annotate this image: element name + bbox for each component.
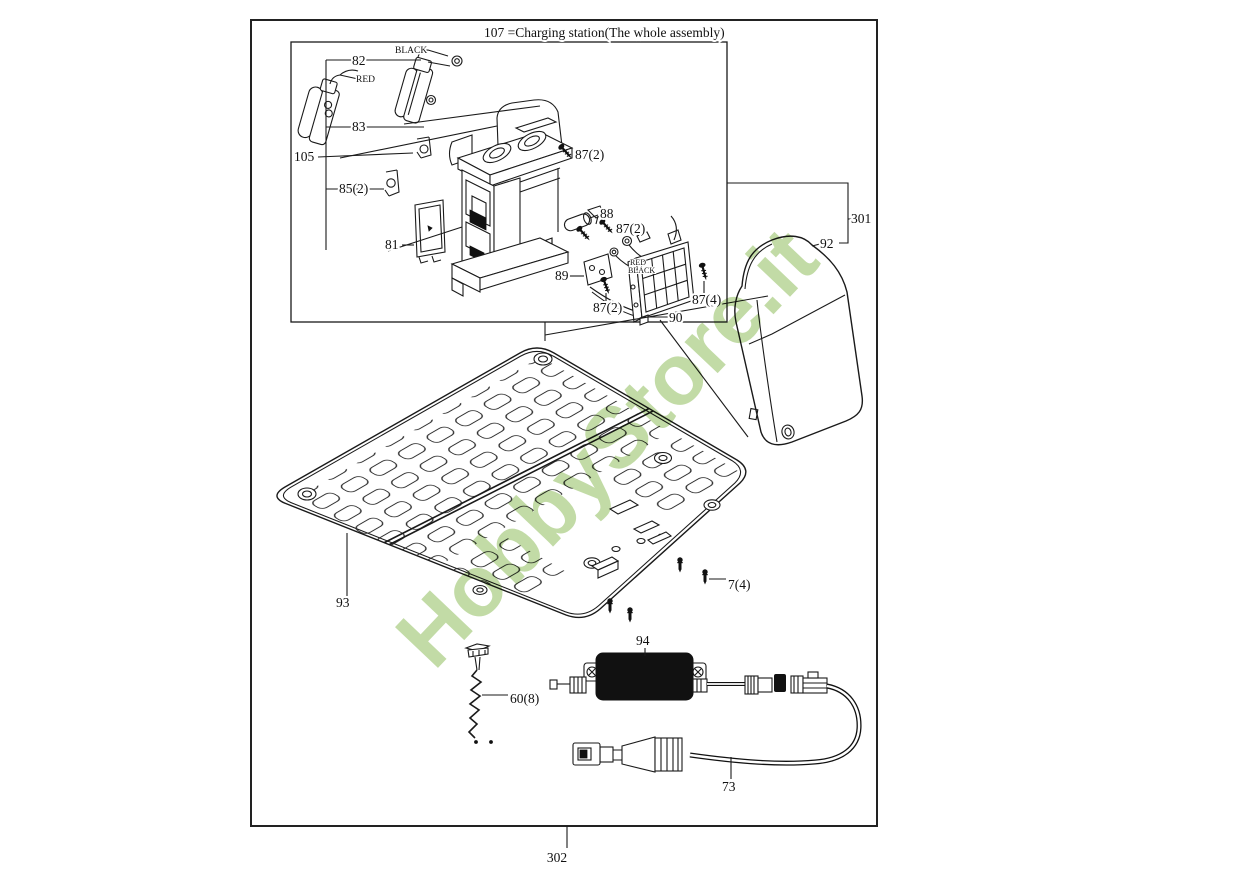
label-87-2-top: 87(2) [575, 147, 604, 162]
diagram-title: 107 =Charging station(The whole assembly… [484, 25, 725, 40]
label-82: 82 [352, 53, 366, 68]
label-88: 88 [600, 206, 614, 221]
label-black-small: BLACK [628, 266, 655, 275]
label-89: 89 [555, 268, 569, 283]
label-92: 92 [820, 236, 834, 251]
label-60-8: 60(8) [510, 691, 539, 706]
label-301: 301 [851, 211, 871, 226]
parts-diagram: 107 =Charging station(The whole assembly… [0, 0, 1250, 885]
label-87-2-mid: 87(2) [616, 221, 645, 236]
label-7-4: 7(4) [728, 577, 751, 592]
label-83: 83 [352, 119, 366, 134]
label-85-2: 85(2) [339, 181, 368, 196]
label-81: 81 [385, 237, 399, 252]
label-302: 302 [547, 850, 567, 865]
label-red-top: RED [356, 75, 375, 85]
label-105: 105 [294, 149, 315, 164]
label-black-top: BLACK [395, 46, 427, 56]
label-73: 73 [722, 779, 736, 794]
label-87-2-bottom: 87(2) [593, 300, 622, 315]
label-93: 93 [336, 595, 350, 610]
label-94: 94 [636, 633, 650, 648]
